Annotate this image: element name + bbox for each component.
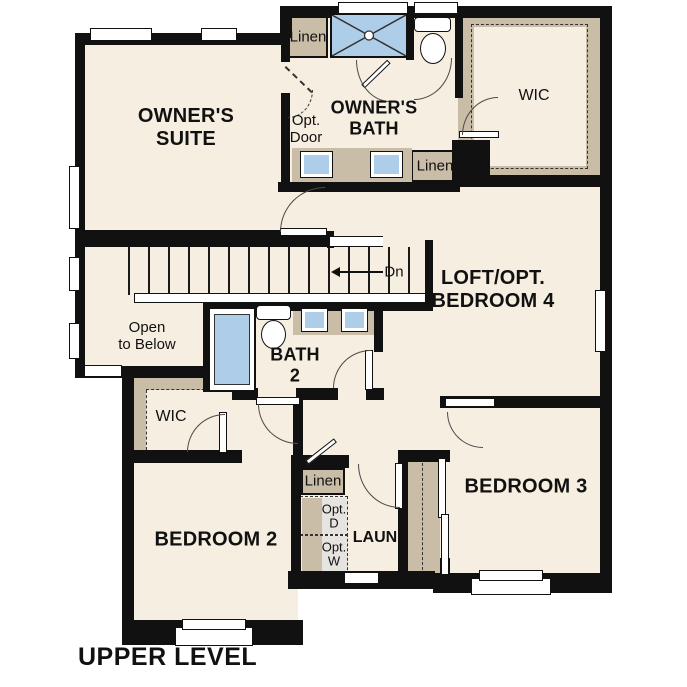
wall-wc-block bbox=[452, 140, 490, 177]
label-wic-upper: WIC bbox=[518, 87, 549, 105]
toilet-tank-owners bbox=[414, 17, 451, 32]
label-owners-bath: OWNER'S BATH bbox=[331, 97, 418, 138]
label-bedroom3: BEDROOM 3 bbox=[465, 476, 588, 499]
window-suite-top-1 bbox=[90, 28, 152, 41]
door-bedroom3 bbox=[445, 398, 495, 407]
stairs-down-arrow-line bbox=[339, 271, 383, 273]
window-laundry bbox=[344, 572, 379, 584]
stair-landing-opening bbox=[330, 236, 383, 247]
window-bedroom2-bay bbox=[182, 619, 246, 630]
window-bedroom3-bay bbox=[479, 570, 543, 581]
label-bedroom2: BEDROOM 2 bbox=[155, 529, 278, 552]
bedroom3-closet-shelf-line bbox=[422, 458, 423, 570]
label-laundry: LAUN bbox=[353, 529, 397, 547]
sink-owners-1 bbox=[300, 151, 333, 178]
label-stairs-down: Dn bbox=[384, 263, 403, 280]
window-loft-right bbox=[595, 290, 606, 352]
stairs-down-arrow-head bbox=[331, 267, 340, 277]
wall-suite-right-a bbox=[281, 45, 290, 62]
wall-laundry-left bbox=[291, 455, 301, 577]
toilet-tank-bath2 bbox=[256, 305, 291, 320]
page-title: UPPER LEVEL bbox=[78, 643, 257, 672]
window-suite-left bbox=[69, 166, 80, 229]
label-opt-door: Opt. Door bbox=[290, 112, 323, 147]
sink-owners-2 bbox=[370, 151, 403, 178]
label-opt-washer: Opt. W bbox=[322, 540, 347, 567]
label-wic-lower: WIC bbox=[155, 408, 186, 426]
window-openbelow-left-2 bbox=[69, 323, 80, 359]
window-openbelow-bottom bbox=[84, 365, 122, 377]
wic-lower-shelf-line-v bbox=[146, 390, 147, 450]
label-linen-hall: Linen bbox=[305, 472, 342, 489]
label-opt-dryer: Opt. D bbox=[322, 502, 347, 529]
floor-plan: OWNER'S SUITE OWNER'S BATH WIC LOFT/OPT.… bbox=[0, 0, 687, 687]
label-loft: LOFT/OPT. BEDROOM 4 bbox=[432, 267, 555, 313]
label-linen-mid: Linen bbox=[417, 157, 454, 174]
wall-laundry-post bbox=[340, 455, 349, 468]
bedroom3-closet bbox=[408, 455, 440, 573]
wall-bath2-right bbox=[374, 302, 383, 352]
label-open-to-below: Open to Below bbox=[118, 319, 176, 354]
window-wc-top bbox=[414, 2, 458, 14]
window-openbelow-left-1 bbox=[69, 257, 80, 291]
bathtub-basin bbox=[214, 314, 250, 385]
closet-slider-bedroom3-1 bbox=[438, 458, 446, 518]
wall-bedroom2-left bbox=[122, 375, 134, 645]
wall-wc-right bbox=[455, 12, 463, 98]
sink-bath2-2 bbox=[341, 308, 368, 332]
label-owners-suite: OWNER'S SUITE bbox=[138, 105, 234, 151]
sink-bath2-1 bbox=[301, 308, 328, 332]
closet-slider-bedroom3-2 bbox=[441, 514, 449, 575]
label-linen-top: Linen bbox=[290, 28, 327, 45]
window-suite-top-2 bbox=[201, 28, 237, 41]
shower bbox=[330, 13, 408, 58]
label-bath2: BATH 2 bbox=[270, 344, 319, 385]
shower-glass-lines bbox=[332, 15, 406, 56]
wall-wic-upper-bottom bbox=[452, 175, 612, 187]
